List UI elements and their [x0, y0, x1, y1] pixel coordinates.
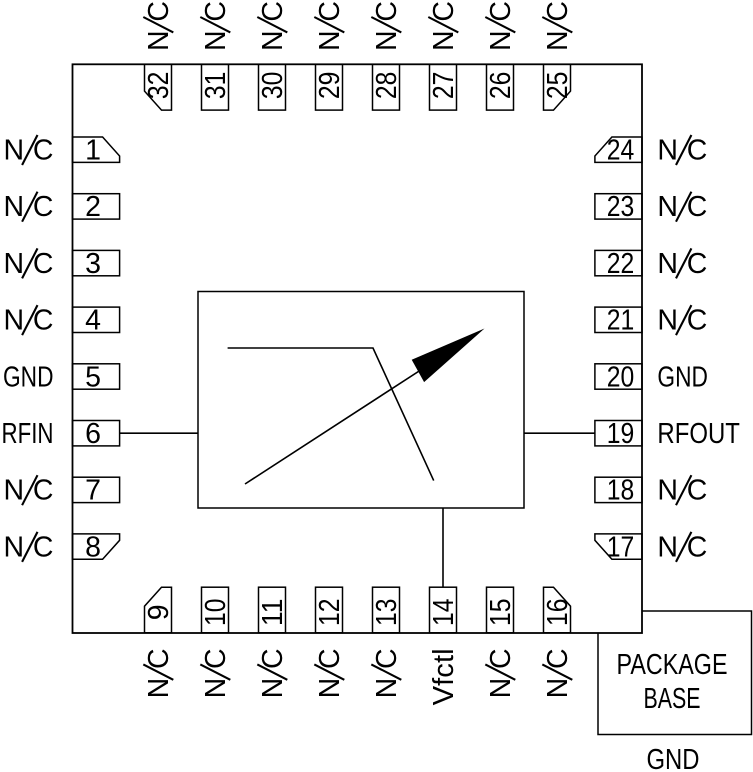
- svg-text:Vfctl: Vfctl: [428, 648, 460, 705]
- svg-text:N: N: [371, 678, 403, 699]
- svg-text:32: 32: [143, 72, 175, 100]
- svg-text:3: 3: [85, 248, 101, 280]
- svg-text:N: N: [485, 678, 517, 699]
- svg-text:N: N: [371, 30, 403, 51]
- svg-text:N: N: [4, 135, 25, 167]
- svg-text:N: N: [657, 531, 678, 563]
- svg-text:N: N: [657, 475, 678, 507]
- svg-text:GND: GND: [3, 361, 54, 393]
- svg-text:13: 13: [371, 599, 403, 627]
- svg-text:N: N: [257, 678, 289, 699]
- svg-text:N: N: [4, 531, 25, 563]
- svg-text:27: 27: [428, 72, 460, 100]
- svg-text:28: 28: [371, 72, 403, 100]
- svg-text:1: 1: [85, 135, 101, 167]
- svg-text:15: 15: [485, 599, 517, 627]
- svg-text:N: N: [200, 30, 232, 51]
- svg-text:8: 8: [85, 531, 101, 563]
- svg-text:4: 4: [85, 305, 101, 337]
- svg-text:5: 5: [85, 361, 101, 393]
- svg-text:N: N: [542, 678, 574, 699]
- svg-text:9: 9: [143, 604, 175, 620]
- svg-text:10: 10: [200, 599, 232, 627]
- svg-text:23: 23: [607, 191, 635, 223]
- svg-text:N: N: [4, 191, 25, 223]
- svg-text:N: N: [4, 475, 25, 507]
- svg-text:17: 17: [607, 531, 635, 563]
- svg-text:26: 26: [485, 72, 517, 100]
- svg-text:N: N: [200, 678, 232, 699]
- svg-text:31: 31: [200, 72, 232, 100]
- svg-text:16: 16: [542, 599, 574, 627]
- svg-text:GND: GND: [647, 744, 700, 772]
- svg-text:25: 25: [542, 72, 574, 100]
- svg-text:N: N: [485, 30, 517, 51]
- svg-text:22: 22: [607, 248, 635, 280]
- svg-text:N: N: [143, 678, 175, 699]
- svg-text:N: N: [314, 30, 346, 51]
- svg-text:N: N: [542, 30, 574, 51]
- svg-text:2: 2: [85, 191, 101, 223]
- svg-text:N: N: [657, 191, 678, 223]
- svg-text:RFOUT: RFOUT: [657, 418, 740, 450]
- svg-text:N: N: [4, 248, 25, 280]
- svg-text:7: 7: [85, 475, 101, 507]
- svg-text:N: N: [657, 135, 678, 167]
- svg-text:24: 24: [607, 135, 635, 167]
- svg-text:11: 11: [257, 599, 289, 627]
- svg-text:29: 29: [314, 72, 346, 100]
- svg-text:19: 19: [607, 418, 635, 450]
- svg-text:RFIN: RFIN: [2, 418, 54, 450]
- svg-text:BASE: BASE: [644, 683, 701, 715]
- svg-text:N: N: [143, 30, 175, 51]
- svg-text:N: N: [4, 305, 25, 337]
- svg-text:12: 12: [314, 599, 346, 627]
- svg-text:21: 21: [607, 305, 635, 337]
- svg-text:18: 18: [607, 475, 635, 507]
- svg-text:14: 14: [428, 598, 460, 626]
- svg-text:N: N: [314, 678, 346, 699]
- svg-text:6: 6: [85, 418, 101, 450]
- svg-text:PACKAGE: PACKAGE: [617, 649, 728, 681]
- svg-text:N: N: [428, 30, 460, 51]
- svg-text:20: 20: [607, 361, 635, 393]
- svg-text:N: N: [257, 30, 289, 51]
- svg-text:30: 30: [257, 72, 289, 100]
- svg-text:GND: GND: [657, 361, 708, 393]
- svg-text:N: N: [657, 248, 678, 280]
- svg-text:N: N: [657, 305, 678, 337]
